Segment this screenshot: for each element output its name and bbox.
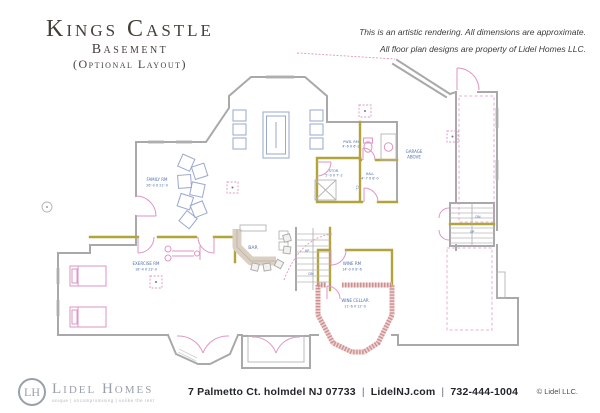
stair2-up-label: UP [470, 230, 475, 234]
footer-separator-2: | [435, 386, 450, 398]
footer-separator-1: | [356, 386, 371, 398]
lidel-homes-logo: LH Lidel Homes unique | uncompromising |… [18, 378, 154, 406]
family-room-label: FAMILY RM [147, 177, 168, 182]
wine-cellar-walls [318, 285, 392, 352]
gym-equipment [165, 246, 200, 261]
footer-address: 7 Palmetto Ct. holmdel NJ 07733 [188, 386, 356, 398]
exterior-walls [58, 60, 518, 368]
floor-plan-drawing: FAMILY RM 26'-0 X 21'-0 BAR EXERCISE RM … [0, 0, 600, 413]
family-room-dims: 26'-0 X 21'-0 [146, 184, 168, 188]
footer-phone: 732-444-1004 [450, 386, 518, 398]
roof-dashed-line [297, 53, 395, 59]
wine-cellar-dims: 11'-6 X 12'-0 [344, 305, 366, 309]
windows [57, 76, 499, 361]
section-marker [42, 202, 52, 212]
stair-up-label: UP [305, 249, 310, 253]
bar-label: BAR [248, 245, 258, 251]
hall-label: HALL [366, 172, 375, 176]
exercise-room-label: EXERCISE RM [133, 261, 160, 266]
massage-tables [70, 266, 106, 327]
stair-dn-label: DN [308, 272, 314, 276]
garage-above-label-2: ABOVE [407, 155, 421, 160]
wine-room-dims: 14'-0 X 8'-6 [342, 268, 362, 272]
garage-above-label-1: GARAGE [406, 149, 423, 154]
hall-dims: 4'-7 X 8'-0 [361, 177, 378, 181]
main-staircase [284, 228, 332, 290]
footer-copyright: © Lidel LLC. [537, 387, 578, 396]
columns [150, 105, 458, 288]
storage-label: STOR. [329, 169, 339, 173]
pool-table [263, 112, 289, 158]
exercise-room-dims: 18'-4 X 23'-0 [135, 268, 157, 272]
footer-website: LidelNJ.com [371, 386, 436, 398]
wine-cellar-label: WINE CELLAR [341, 298, 369, 303]
storage-dims: 5'-0 X 7'-2 [325, 174, 342, 178]
stair2-dn-label: DN [475, 215, 481, 219]
logo-brand-name: Lidel Homes [52, 382, 154, 397]
lounge-chairs [177, 154, 208, 229]
bathroom-fixtures [364, 134, 397, 160]
wine-room-label: WINE RM [343, 261, 362, 266]
footer-contact-line: 7 Palmetto Ct. holmdel NJ 07733|LidelNJ.… [188, 386, 518, 398]
logo-monogram-icon: LH [18, 378, 46, 406]
closet-label: CL. [355, 185, 359, 190]
powder-room-dims: 4'-6 X 6'-2 [342, 145, 359, 149]
logo-tagline: unique | uncompromising | unlike the res… [52, 398, 154, 403]
bar-counter [237, 225, 291, 271]
room-labels: FAMILY RM 26'-0 X 21'-0 BAR EXERCISE RM … [133, 140, 481, 309]
powder-room-label: PWD. RM [343, 140, 359, 144]
page: Kings Castle Basement (Optional Layout) … [0, 0, 600, 413]
